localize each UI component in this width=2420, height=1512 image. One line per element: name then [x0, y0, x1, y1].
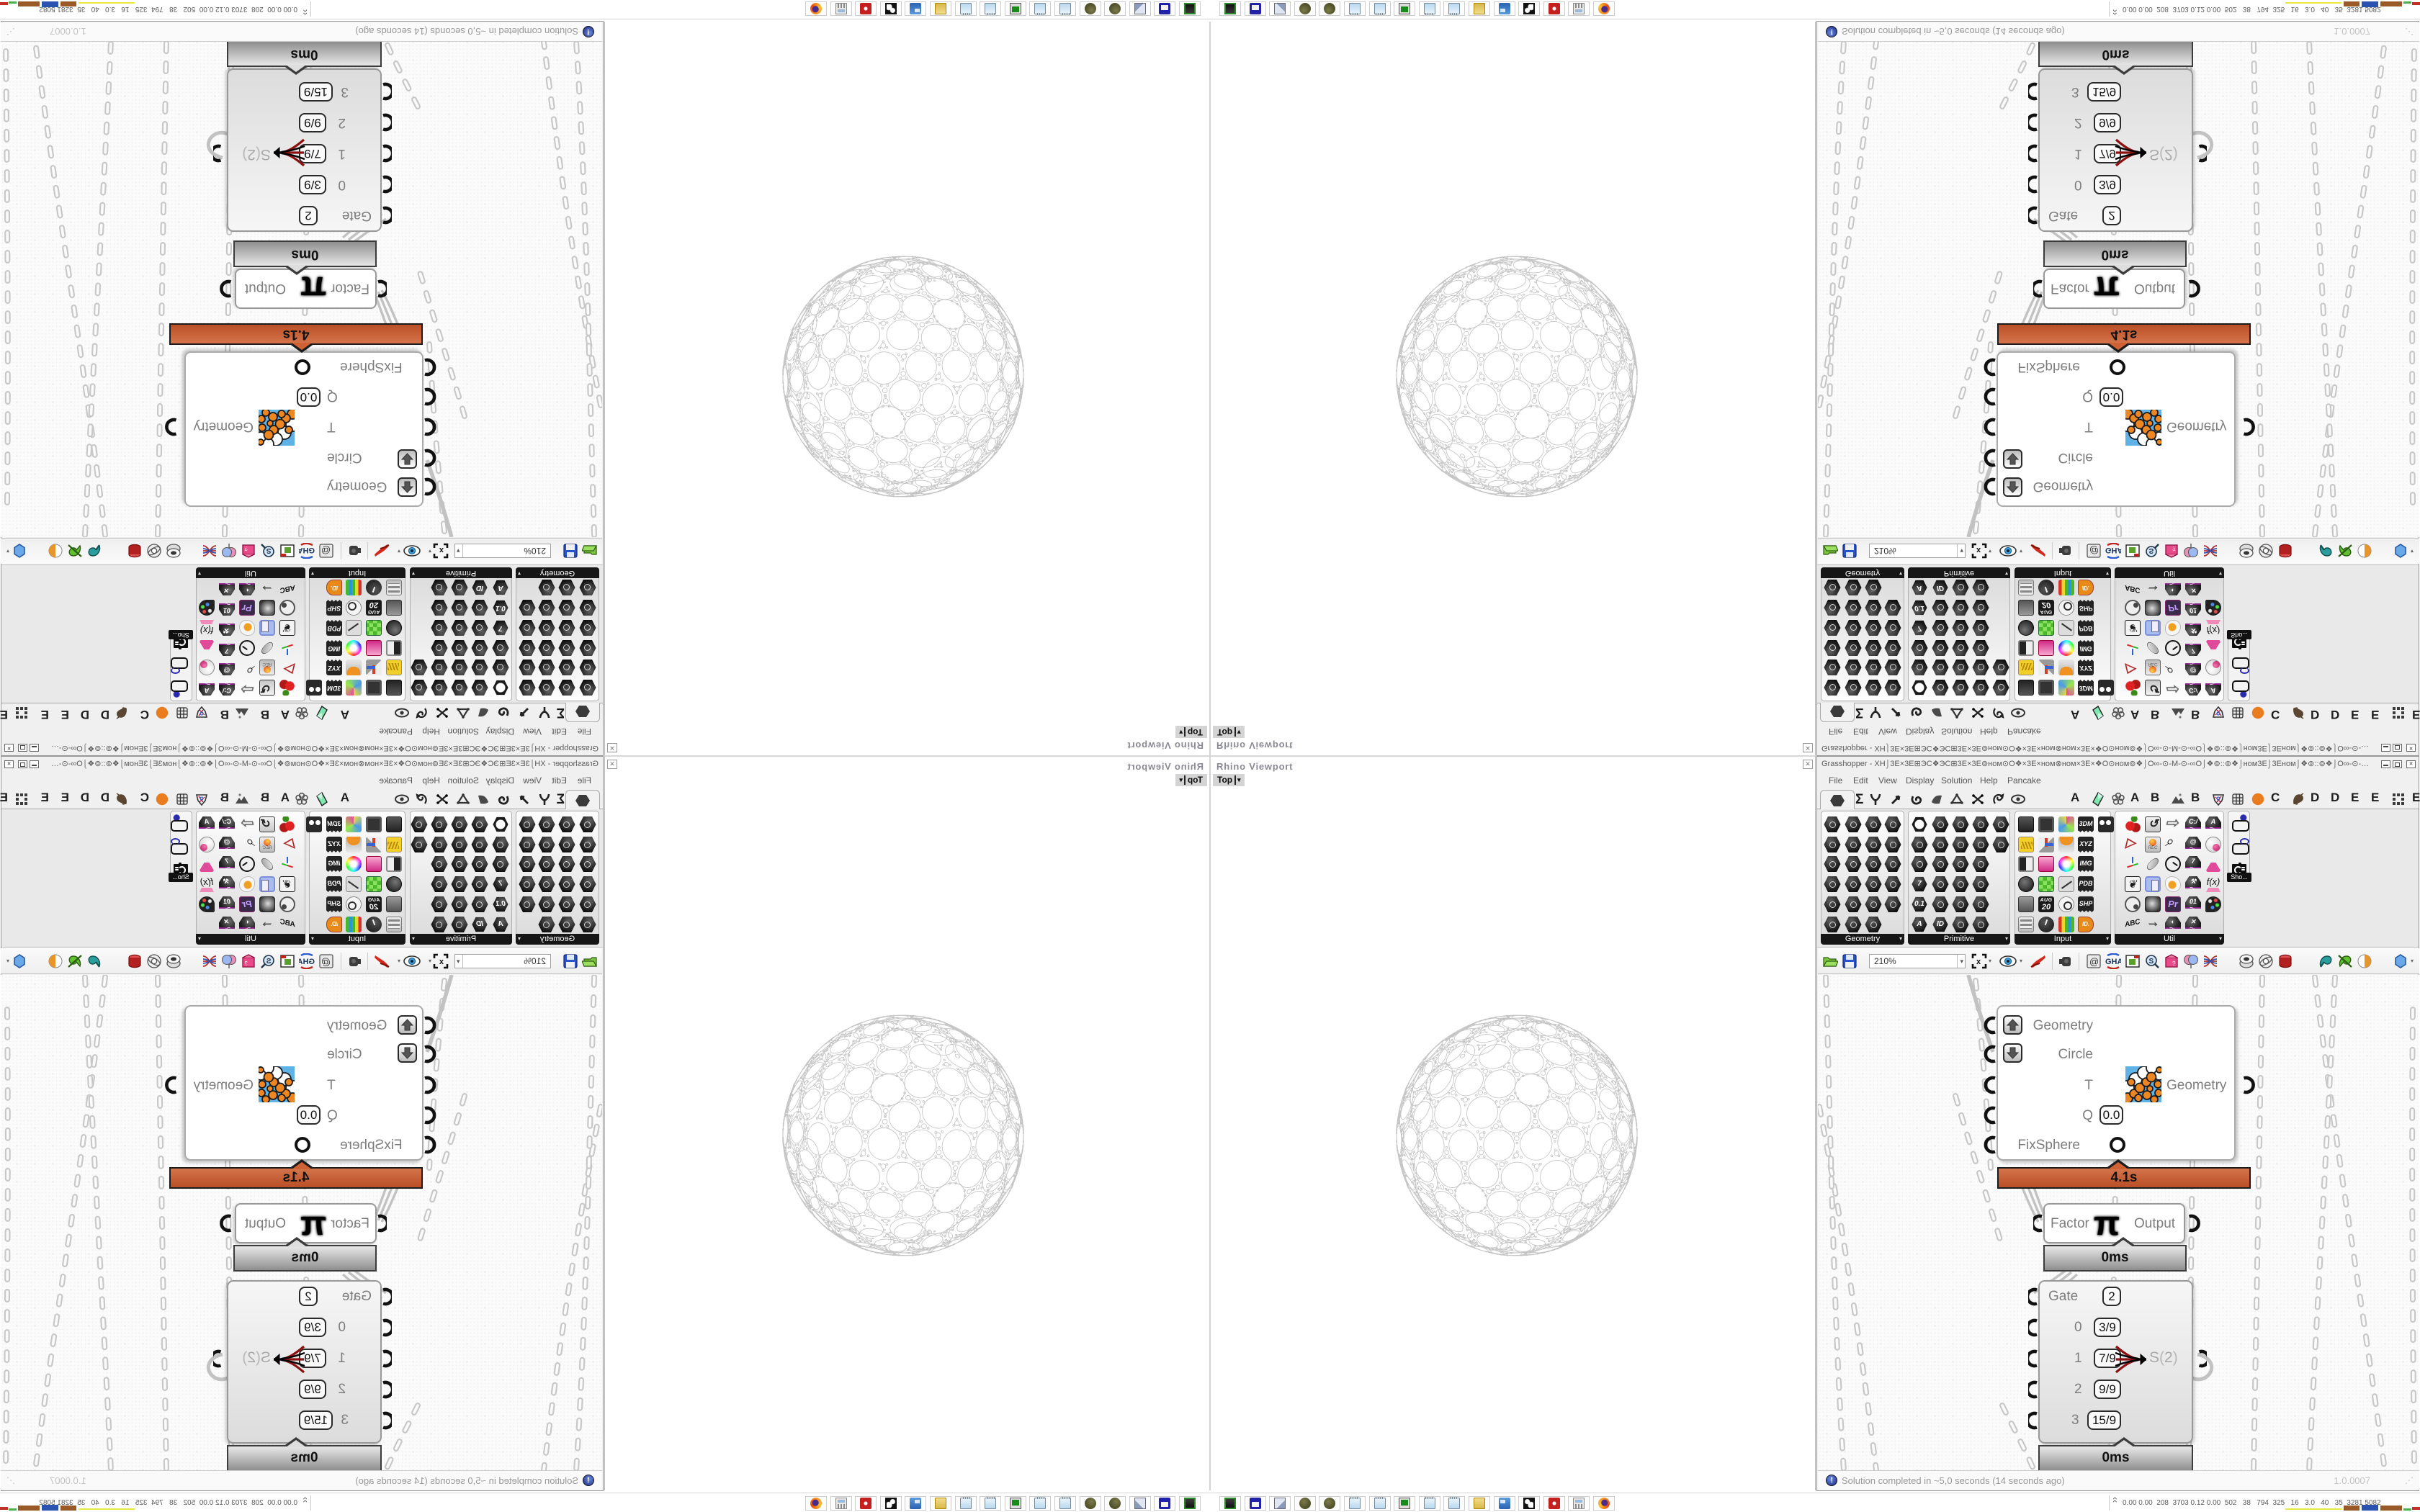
- svg-text:GHA: GHA: [2105, 546, 2121, 554]
- svg-text:@: @: [321, 956, 331, 967]
- svg-text:S: S: [266, 958, 272, 966]
- svg-text:Σ: Σ: [1855, 792, 1863, 806]
- svg-text:?: ?: [2172, 545, 2176, 552]
- svg-text:x: x: [439, 958, 444, 966]
- svg-text:x: x: [1976, 958, 1981, 966]
- svg-text:@: @: [321, 545, 331, 556]
- svg-text:Σ: Σ: [1855, 706, 1863, 720]
- svg-text:Σ: Σ: [557, 792, 565, 806]
- svg-text:GHA: GHA: [2105, 958, 2121, 966]
- svg-text:GHA: GHA: [299, 958, 315, 966]
- svg-text:x: x: [439, 546, 444, 554]
- svg-text:S: S: [2149, 546, 2154, 554]
- svg-text:?: ?: [244, 960, 248, 967]
- svg-text:?: ?: [2172, 960, 2176, 967]
- svg-text:S: S: [2149, 958, 2154, 966]
- svg-text:GHA: GHA: [299, 546, 315, 554]
- svg-text:?: ?: [244, 545, 248, 552]
- svg-text:Σ: Σ: [557, 706, 565, 720]
- svg-text:@: @: [2089, 545, 2099, 556]
- svg-text:x: x: [1976, 546, 1981, 554]
- svg-text:S: S: [266, 546, 272, 554]
- svg-text:@: @: [2089, 956, 2099, 967]
